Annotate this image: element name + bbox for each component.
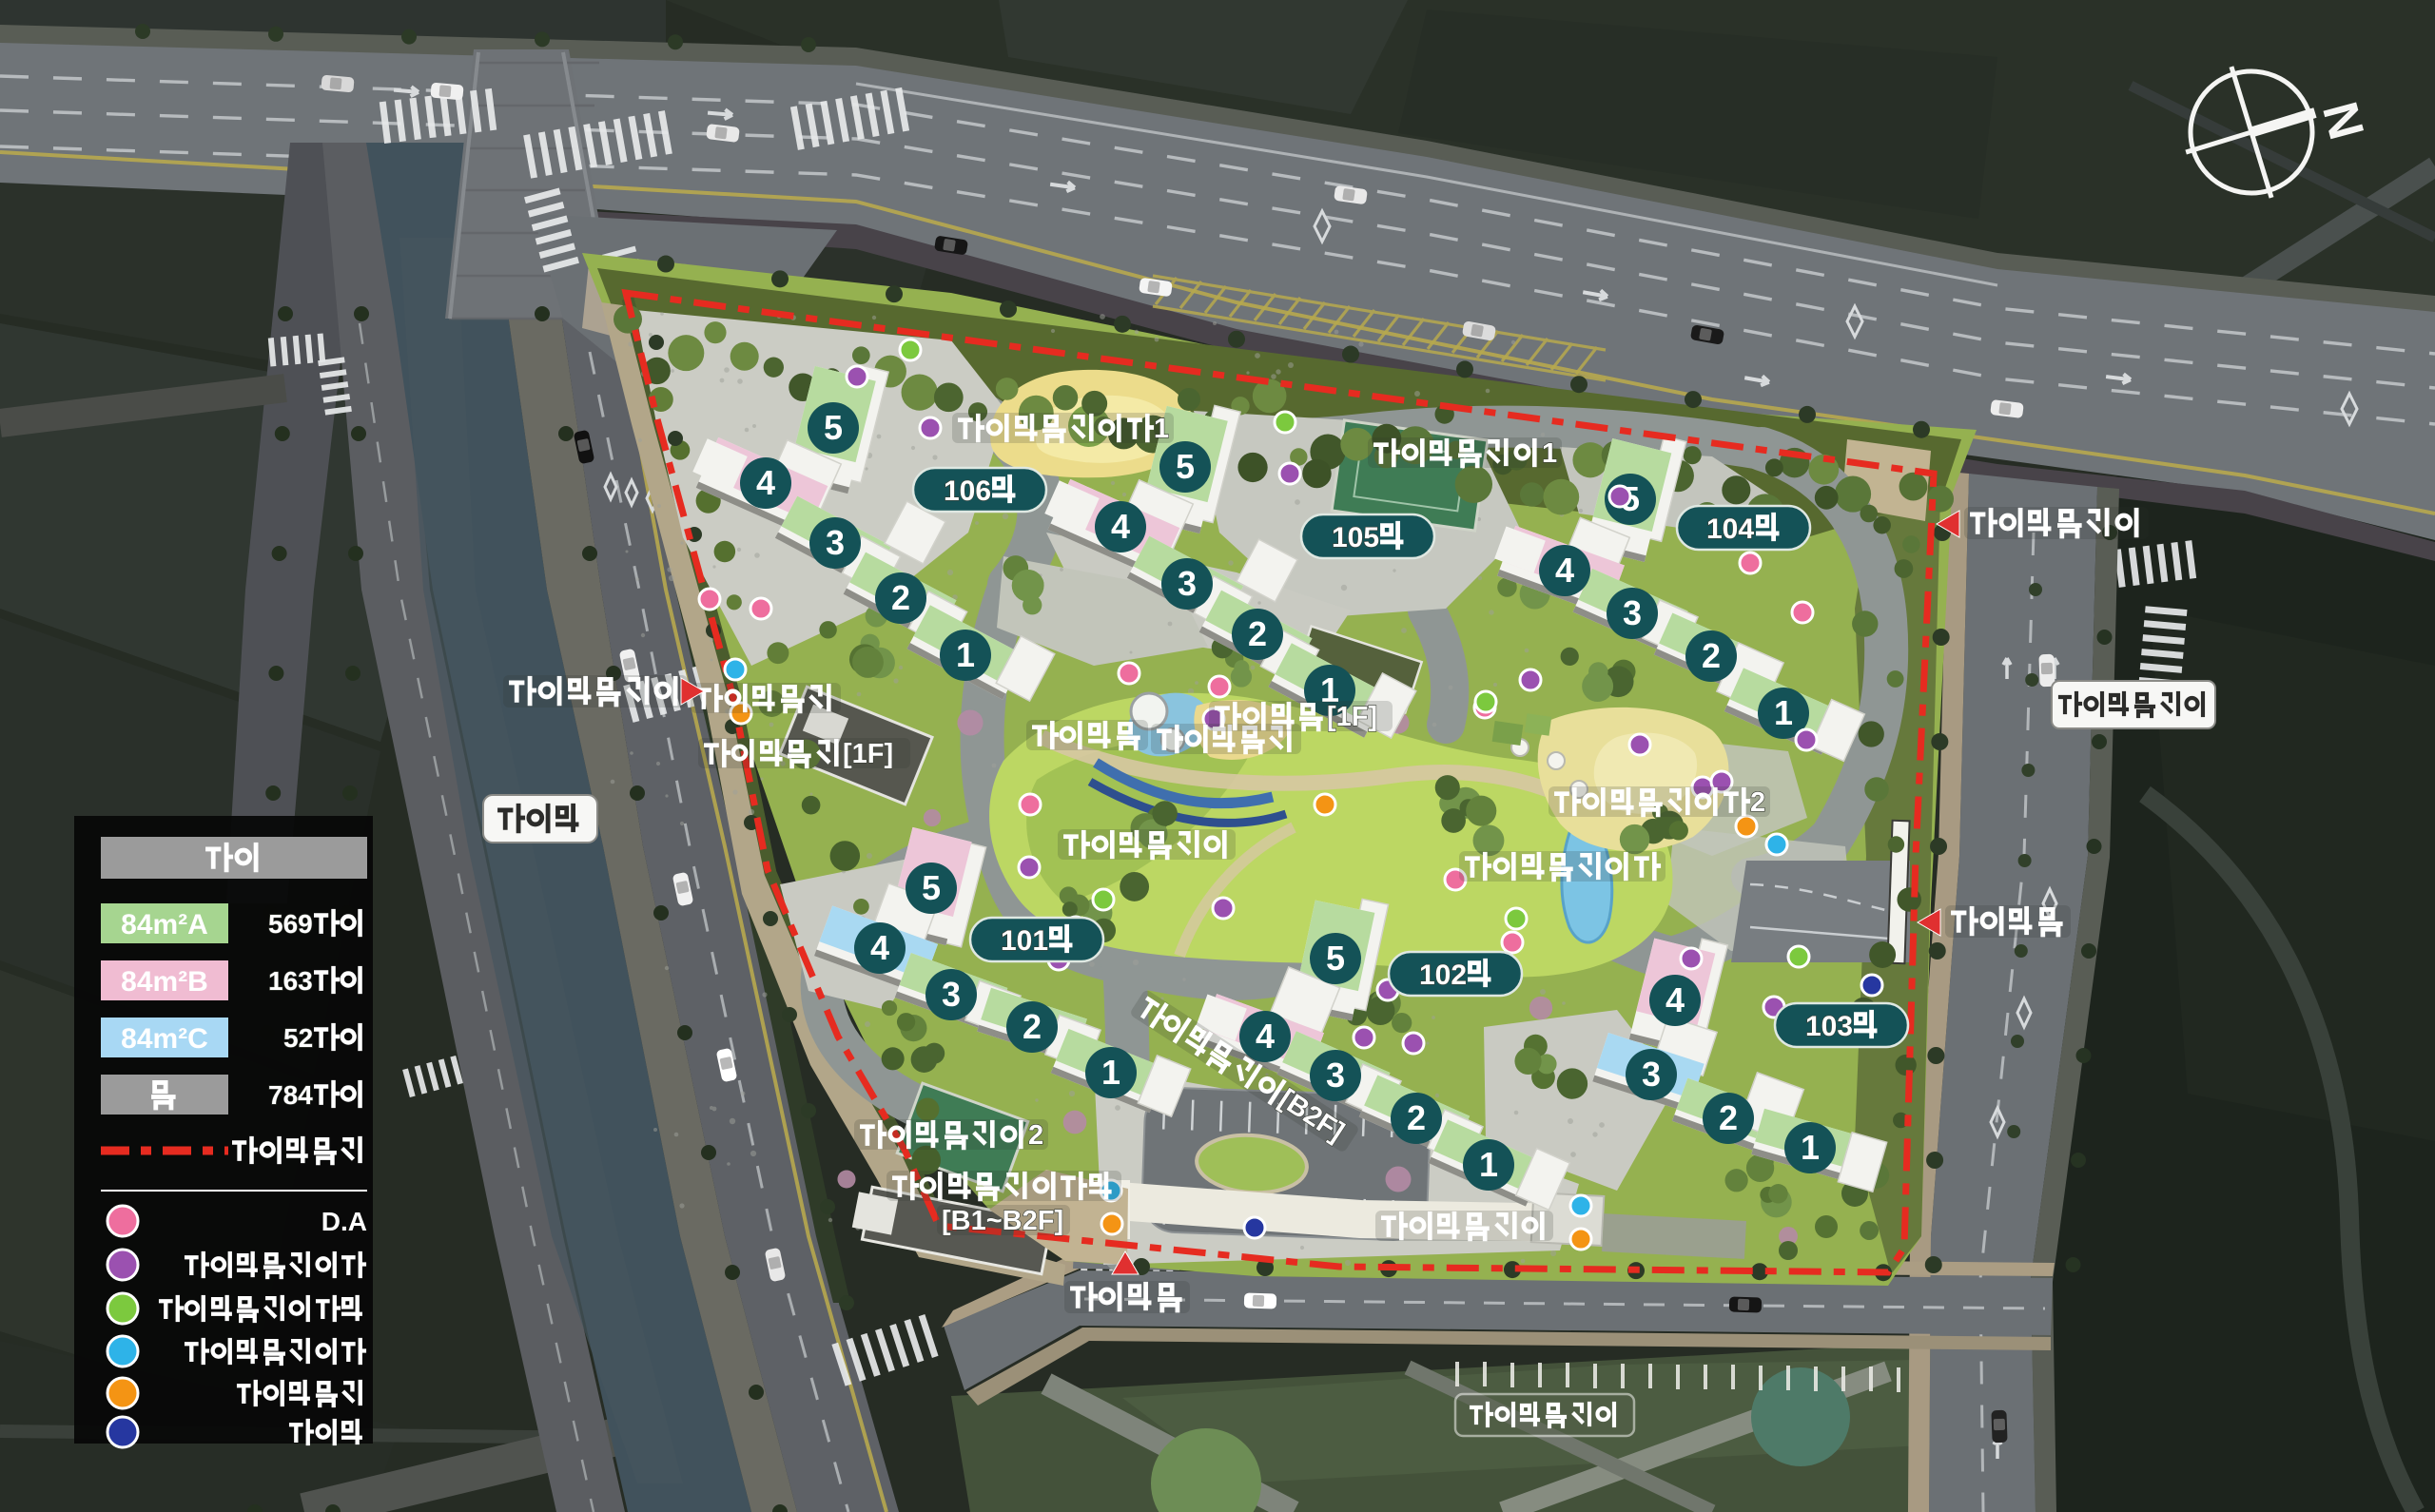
svg-text:3: 3 xyxy=(826,523,845,562)
svg-text:D.A: D.A xyxy=(321,1207,367,1236)
svg-text:4: 4 xyxy=(1555,551,1574,590)
svg-text:[B1~B2F]: [B1~B2F] xyxy=(942,1206,1063,1236)
svg-text:4: 4 xyxy=(1666,980,1685,1019)
svg-text:1: 1 xyxy=(1154,414,1169,444)
svg-text:2: 2 xyxy=(1750,787,1765,818)
svg-text:1: 1 xyxy=(1479,1145,1498,1184)
svg-text:3: 3 xyxy=(1326,1056,1345,1095)
svg-text:2: 2 xyxy=(891,578,910,617)
svg-text:84m²A: 84m²A xyxy=(121,909,208,940)
svg-text:5: 5 xyxy=(1176,447,1195,486)
svg-text:2: 2 xyxy=(1248,614,1267,653)
svg-text:4: 4 xyxy=(1256,1017,1275,1056)
svg-text:2: 2 xyxy=(1028,1120,1043,1151)
svg-text:2: 2 xyxy=(1702,636,1721,675)
svg-text:2: 2 xyxy=(1719,1098,1738,1137)
svg-text:102: 102 xyxy=(1419,960,1467,991)
svg-text:105: 105 xyxy=(1332,522,1379,553)
svg-text:1: 1 xyxy=(1542,438,1557,469)
svg-text:1: 1 xyxy=(1101,1053,1120,1092)
svg-text:84m²B: 84m²B xyxy=(121,966,208,998)
svg-text:4: 4 xyxy=(1111,507,1130,546)
svg-text:1: 1 xyxy=(1801,1128,1820,1167)
svg-text:5: 5 xyxy=(1326,939,1345,978)
svg-text:101: 101 xyxy=(1001,925,1048,957)
svg-text:2: 2 xyxy=(1407,1098,1426,1137)
svg-text:3: 3 xyxy=(1623,593,1642,632)
svg-text:3: 3 xyxy=(942,975,961,1014)
svg-text:104: 104 xyxy=(1706,514,1754,545)
svg-text:[1F]: [1F] xyxy=(843,739,893,769)
svg-text:163: 163 xyxy=(268,966,313,996)
svg-text:52: 52 xyxy=(283,1023,313,1053)
svg-text:3: 3 xyxy=(1642,1055,1661,1094)
svg-text:106: 106 xyxy=(944,475,991,507)
svg-text:784: 784 xyxy=(268,1080,313,1110)
svg-text:4: 4 xyxy=(756,463,775,502)
svg-text:103: 103 xyxy=(1805,1011,1853,1042)
svg-text:1: 1 xyxy=(1774,693,1793,732)
svg-text:[1F]: [1F] xyxy=(1327,702,1377,732)
svg-text:4: 4 xyxy=(870,928,889,967)
svg-text:5: 5 xyxy=(922,868,941,907)
svg-text:3: 3 xyxy=(1178,564,1197,603)
svg-text:569: 569 xyxy=(268,909,313,939)
svg-text:1: 1 xyxy=(956,635,975,674)
svg-text:84m²C: 84m²C xyxy=(121,1023,208,1055)
svg-text:5: 5 xyxy=(824,408,843,447)
svg-text:2: 2 xyxy=(1023,1007,1042,1046)
